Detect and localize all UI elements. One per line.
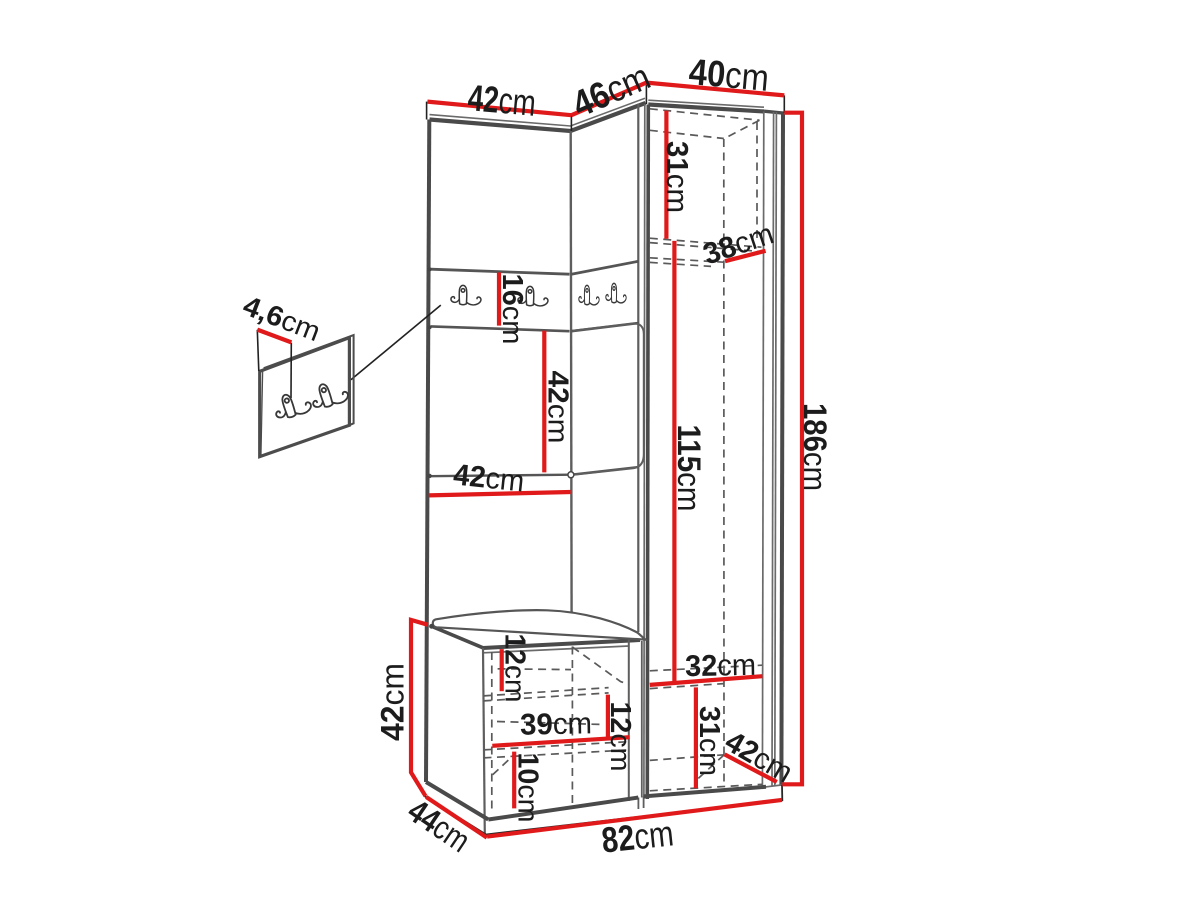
svg-text:31cm: 31cm xyxy=(660,141,695,213)
svg-text:12cm: 12cm xyxy=(499,634,531,703)
svg-text:186cm: 186cm xyxy=(797,403,833,491)
svg-text:82cm: 82cm xyxy=(600,812,676,860)
svg-text:42cm: 42cm xyxy=(466,77,537,124)
svg-text:16cm: 16cm xyxy=(496,274,528,345)
svg-text:39cm: 39cm xyxy=(520,707,593,741)
svg-text:40cm: 40cm xyxy=(687,51,770,99)
svg-text:42cm: 42cm xyxy=(375,663,411,741)
svg-text:31cm: 31cm xyxy=(693,706,725,776)
svg-text:10cm: 10cm xyxy=(512,753,544,823)
svg-text:115cm: 115cm xyxy=(671,425,707,512)
svg-text:32cm: 32cm xyxy=(685,649,757,683)
svg-text:42cm: 42cm xyxy=(542,371,574,444)
svg-text:12cm: 12cm xyxy=(604,702,636,772)
